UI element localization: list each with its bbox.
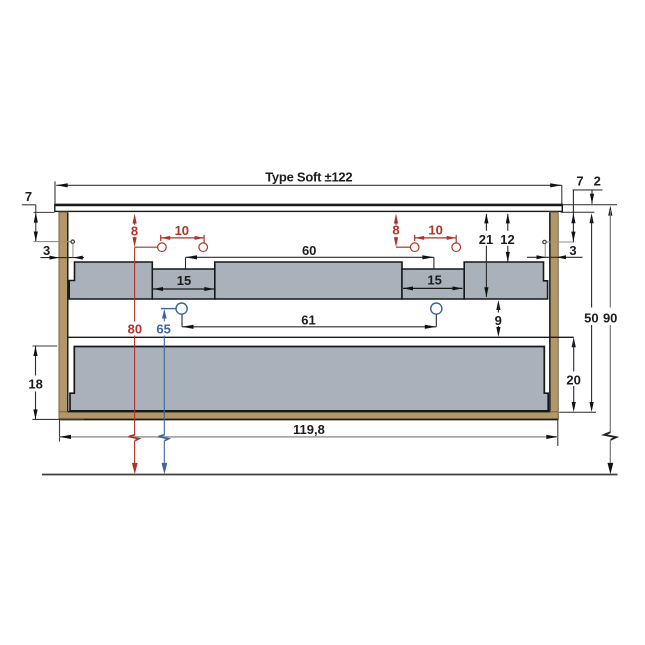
svg-text:12: 12 bbox=[500, 232, 514, 247]
svg-text:10: 10 bbox=[175, 223, 189, 238]
svg-text:65: 65 bbox=[156, 322, 170, 337]
svg-text:15: 15 bbox=[177, 273, 191, 288]
svg-text:60: 60 bbox=[302, 243, 316, 258]
svg-text:3: 3 bbox=[43, 243, 50, 258]
svg-text:90: 90 bbox=[603, 311, 617, 326]
svg-text:7: 7 bbox=[576, 173, 583, 188]
svg-text:8: 8 bbox=[131, 224, 138, 239]
svg-text:18: 18 bbox=[28, 377, 42, 392]
svg-text:80: 80 bbox=[128, 322, 142, 337]
svg-text:9: 9 bbox=[495, 313, 502, 328]
svg-text:119,8: 119,8 bbox=[293, 422, 325, 437]
svg-text:3: 3 bbox=[569, 243, 576, 258]
svg-text:10: 10 bbox=[428, 222, 442, 237]
svg-text:7: 7 bbox=[25, 189, 32, 204]
svg-text:61: 61 bbox=[301, 313, 315, 328]
svg-text:Type Soft ±122: Type Soft ±122 bbox=[265, 170, 352, 185]
svg-text:21: 21 bbox=[479, 232, 493, 247]
svg-text:50: 50 bbox=[584, 311, 598, 326]
svg-text:2: 2 bbox=[594, 173, 601, 188]
svg-text:8: 8 bbox=[392, 222, 399, 237]
svg-text:20: 20 bbox=[566, 372, 580, 387]
svg-text:15: 15 bbox=[427, 273, 441, 288]
